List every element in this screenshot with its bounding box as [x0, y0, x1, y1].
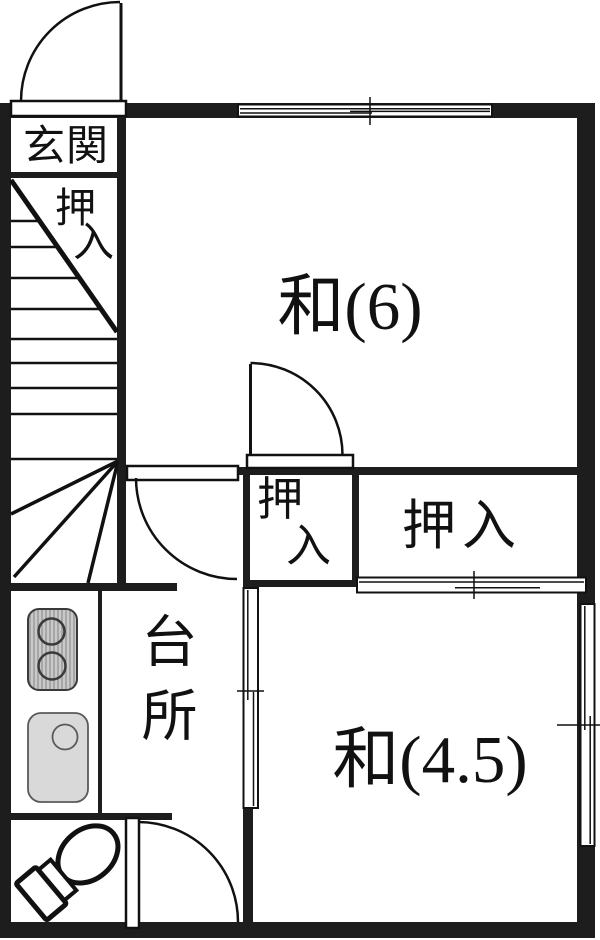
closet-fusuma-icon [357, 571, 586, 599]
wall-genkan-bottom [11, 172, 126, 178]
wall-small-closet-left [243, 474, 250, 587]
wall-stairs-right [117, 114, 126, 585]
wall-kitchen-top [11, 583, 177, 591]
wa6-door-icon [247, 363, 353, 468]
label-stair-closet-char2: 入 [73, 222, 114, 263]
two-burner-stove-icon [28, 609, 77, 690]
toilet-door-icon [126, 818, 238, 928]
kitchen-wa45-slider-icon [237, 588, 264, 808]
floorplan: 玄関 押 入 和(6) 押 入 押入 台所 和(4.5) [0, 0, 600, 940]
kitchen-fixtures [28, 609, 88, 802]
wall-between-closets [352, 467, 359, 587]
kitchen-door-icon [127, 466, 238, 579]
label-room-wa45: 和(4.5) [285, 727, 575, 794]
kitchen-counter-line [98, 591, 102, 813]
label-kitchen: 台所 [136, 612, 192, 760]
kitchen-sink-icon [28, 713, 88, 802]
wall-small-closet-bottom [243, 580, 359, 587]
label-genkan: 玄関 [13, 126, 119, 168]
toilet-icon [15, 814, 129, 921]
wall-left [0, 103, 11, 938]
entrance-door-icon [11, 2, 126, 116]
label-small-closet-char2: 入 [286, 524, 331, 569]
wall-toilet-top [0, 813, 172, 820]
wall-bottom [0, 922, 595, 938]
wall-below-slider [243, 806, 253, 922]
label-room-wa6: 和(6) [240, 274, 460, 341]
top-sliding-window-icon [238, 97, 492, 125]
label-large-closet: 押入 [376, 499, 548, 553]
label-small-closet-char1: 押 [257, 477, 303, 523]
